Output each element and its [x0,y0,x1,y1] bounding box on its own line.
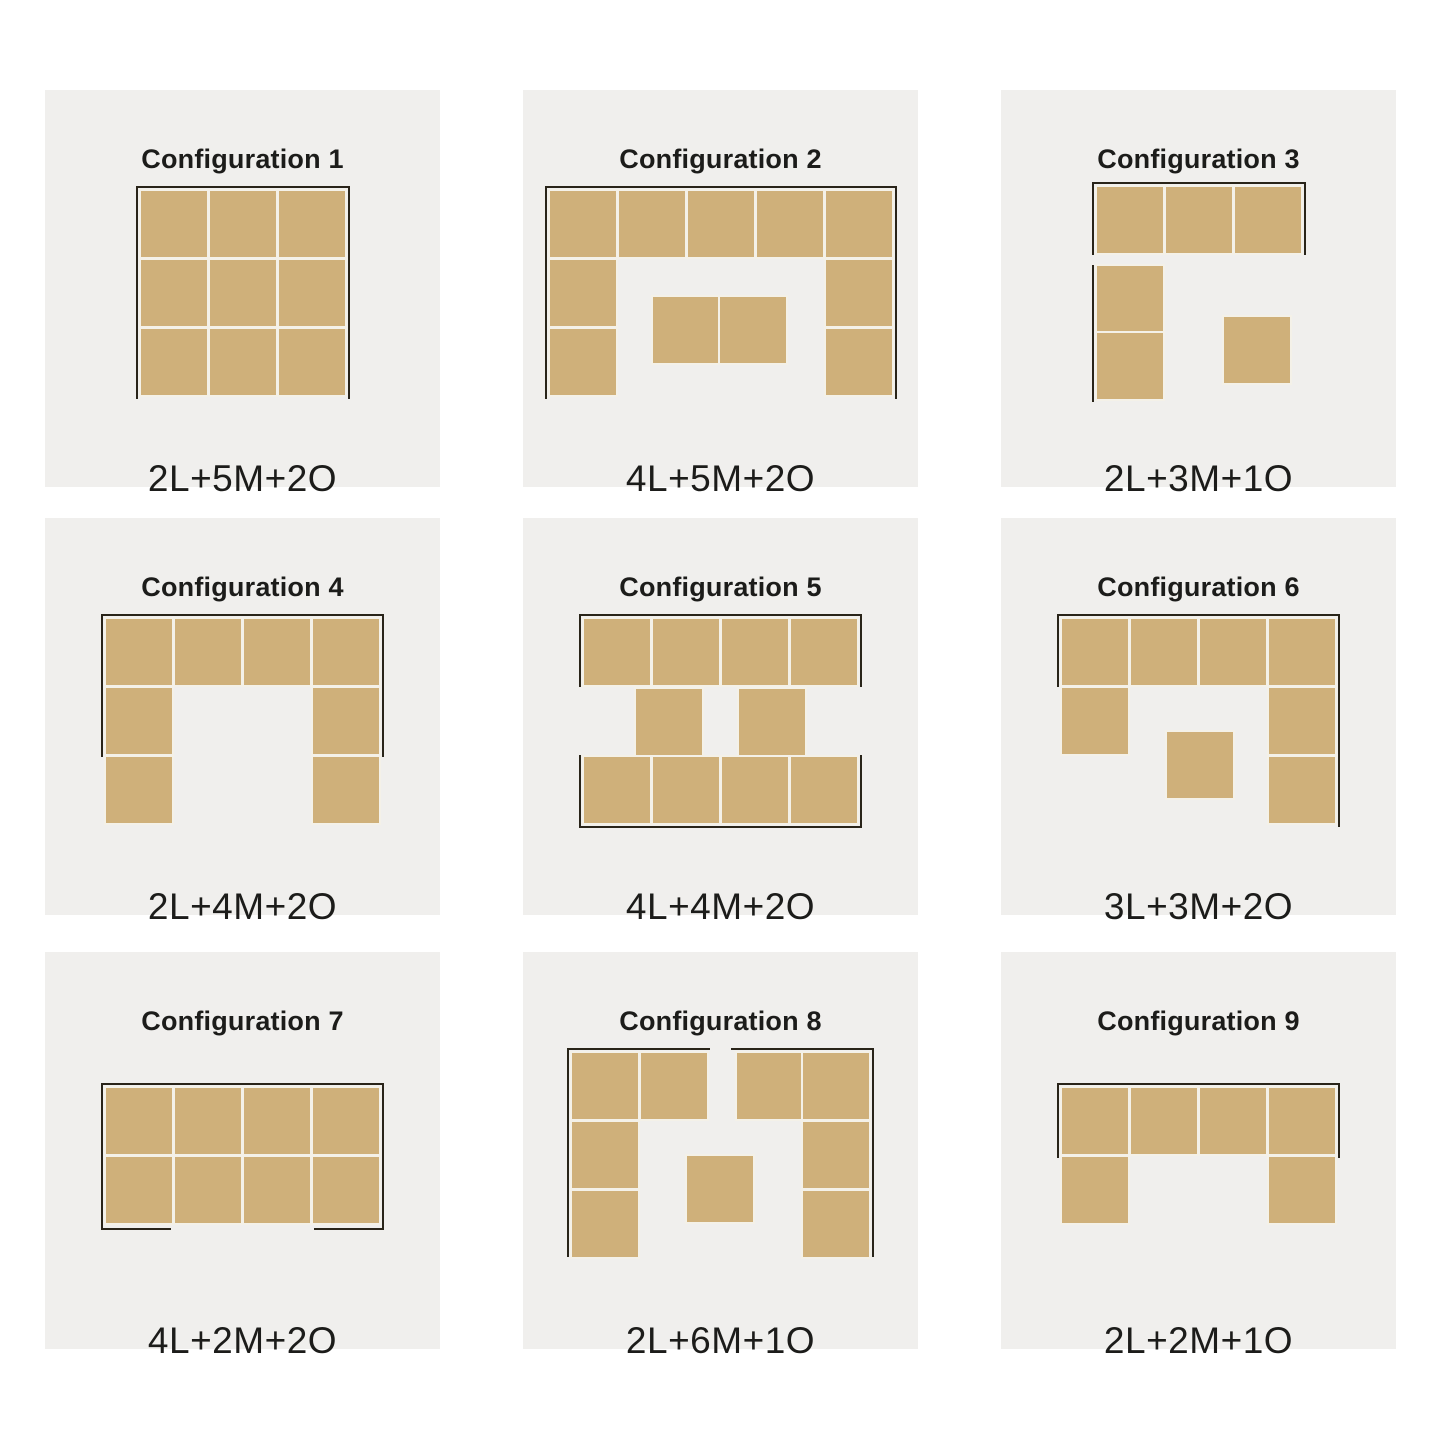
seat-module-square [244,1088,310,1154]
seat-module-square [550,329,616,395]
sofa-outline-segment [101,614,103,757]
seat-module-square [1269,1088,1335,1154]
sofa-outline-segment [348,186,350,399]
seat-module-square [244,1157,310,1223]
seat-module-square [826,260,892,326]
sofa-outline-segment [1057,1083,1059,1158]
seat-module-square [826,191,892,257]
seat-module-square [550,260,616,326]
seat-module-square [572,1191,638,1257]
seat-module-square [653,757,719,823]
ottoman-square [687,1156,753,1222]
seat-module-square [1269,757,1335,823]
seat-module-square [175,619,241,685]
sofa-layout-diagram [550,191,892,395]
configuration-card[interactable]: Configuration 1 2L+5M+2O [45,90,440,487]
sofa-layout-diagram [141,191,345,395]
seat-module-square [313,1088,379,1154]
configuration-card[interactable]: Configuration 2 4L+5M+2O [523,90,918,487]
sofa-layout-diagram [106,1088,379,1223]
seat-module-square [1062,1088,1128,1154]
seat-module-square [826,329,892,395]
seat-module-square [1166,187,1232,253]
configuration-card[interactable]: Configuration 4 2L+4M+2O [45,518,440,915]
sofa-outline-segment [1057,614,1059,687]
sofa-layout-diagram [106,619,379,823]
sofa-outline-segment [545,186,547,399]
configuration-card[interactable]: Configuration 5 4L+4M+2O [523,518,918,915]
seat-module-square [1097,266,1163,332]
sofa-outline-segment [101,1083,103,1230]
sofa-outline-segment [579,614,581,687]
sofa-layout-diagram [584,619,857,823]
seat-module-square [141,191,207,257]
sofa-outline-segment [579,826,862,828]
sofa-outline-segment [314,1228,384,1230]
seat-module-square [106,1157,172,1223]
seat-module-square [1062,1157,1128,1223]
seat-module-square [1269,1157,1335,1223]
configuration-card[interactable]: Configuration 8 2L+6M+1O [523,952,918,1349]
seat-module-square [572,1122,638,1188]
seat-module-square [791,619,857,685]
seat-module-square [279,260,345,326]
seat-module-square [641,1053,707,1119]
module-count-label: 2L+6M+1O [523,1320,918,1363]
seat-module-square [803,1053,869,1119]
sofa-outline-segment [872,1048,874,1257]
module-count-label: 3L+3M+2O [1001,886,1396,929]
seat-module-square [279,329,345,395]
seat-module-square [141,329,207,395]
sofa-outline-segment [545,186,897,188]
seat-module-square [313,619,379,685]
seat-module-square [1131,1088,1197,1154]
sofa-outline-segment [1338,614,1340,827]
configurations-grid: Configuration 1 2L+5M+2O Configuration 2… [0,0,1445,1445]
sofa-outline-segment [136,186,350,188]
seat-module-square [722,619,788,685]
seat-module-square [1131,619,1197,685]
module-count-label: 2L+3M+1O [1001,458,1396,501]
configuration-title: Configuration 5 [523,573,918,603]
ottoman-square [1224,317,1290,383]
seat-module-square [791,757,857,823]
sofa-outline-segment [382,1083,384,1230]
seat-module-square [210,329,276,395]
configuration-title: Configuration 7 [45,1007,440,1037]
sofa-outline-segment [731,1048,874,1050]
ottoman-square [720,297,786,363]
configuration-title: Configuration 8 [523,1007,918,1037]
sofa-outline-segment [860,614,862,687]
seat-module-square [1269,688,1335,754]
ottoman-square [636,689,702,755]
sofa-outline-segment [101,614,384,616]
sofa-outline-segment [860,755,862,828]
seat-module-square [572,1053,638,1119]
sofa-layout-diagram [1097,187,1301,399]
configuration-title: Configuration 2 [523,145,918,175]
sofa-outline-segment [1092,182,1094,255]
seat-module-square [584,619,650,685]
seat-module-square [106,688,172,754]
configuration-card[interactable]: Configuration 6 3L+3M+2O [1001,518,1396,915]
sofa-outline-segment [579,614,862,616]
seat-module-square [175,1157,241,1223]
sofa-outline-segment [1304,182,1306,255]
sofa-outline-segment [567,1048,710,1050]
module-count-label: 2L+4M+2O [45,886,440,929]
module-count-label: 4L+4M+2O [523,886,918,929]
seat-module-square [584,757,650,823]
seat-module-square [210,260,276,326]
sofa-outline-segment [1057,614,1340,616]
configuration-title: Configuration 1 [45,145,440,175]
seat-module-square [1235,187,1301,253]
module-count-label: 4L+5M+2O [523,458,918,501]
sofa-outline-segment [1338,1083,1340,1158]
seat-module-square [619,191,685,257]
seat-module-square [722,757,788,823]
seat-module-square [803,1122,869,1188]
sofa-layout-diagram [1062,1088,1335,1223]
seat-module-square [1200,1088,1266,1154]
seat-module-square [106,757,172,823]
sofa-outline-segment [1092,265,1094,402]
seat-module-square [313,757,379,823]
seat-module-square [313,1157,379,1223]
seat-module-square [688,191,754,257]
seat-module-square [1097,187,1163,253]
module-count-label: 4L+2M+2O [45,1320,440,1363]
seat-module-square [175,1088,241,1154]
seat-module-square [106,619,172,685]
seat-module-square [313,688,379,754]
sofa-outline-segment [101,1083,384,1085]
seat-module-square [550,191,616,257]
sofa-layout-diagram [572,1053,869,1257]
seat-module-square [244,619,310,685]
configuration-card[interactable]: Configuration 3 2L+3M+1O [1001,90,1396,487]
seat-module-square [737,1053,803,1119]
seat-module-square [1062,688,1128,754]
seat-module-square [757,191,823,257]
configuration-card[interactable]: Configuration 7 4L+2M+2O [45,952,440,1349]
configuration-title: Configuration 6 [1001,573,1396,603]
seat-module-square [210,191,276,257]
configuration-title: Configuration 3 [1001,145,1396,175]
sofa-outline-segment [1092,182,1306,184]
seat-module-square [141,260,207,326]
seat-module-square [279,191,345,257]
sofa-outline-segment [136,186,138,399]
ottoman-square [739,689,805,755]
seat-module-square [1200,619,1266,685]
module-count-label: 2L+2M+1O [1001,1320,1396,1363]
sofa-outline-segment [101,1228,171,1230]
sofa-layout-diagram [1062,619,1335,823]
seat-module-square [1269,619,1335,685]
seat-module-square [803,1191,869,1257]
configuration-title: Configuration 4 [45,573,440,603]
seat-module-square [653,619,719,685]
ottoman-square [653,297,719,363]
sofa-outline-segment [1057,1083,1340,1085]
sofa-outline-segment [579,755,581,828]
seat-module-square [106,1088,172,1154]
module-count-label: 2L+5M+2O [45,458,440,501]
ottoman-square [1167,732,1233,798]
configuration-title: Configuration 9 [1001,1007,1396,1037]
seat-module-square [1097,333,1163,399]
seat-module-square [1062,619,1128,685]
sofa-outline-segment [567,1048,569,1257]
sofa-outline-segment [382,614,384,757]
sofa-outline-segment [895,186,897,399]
configuration-card[interactable]: Configuration 9 2L+2M+1O [1001,952,1396,1349]
